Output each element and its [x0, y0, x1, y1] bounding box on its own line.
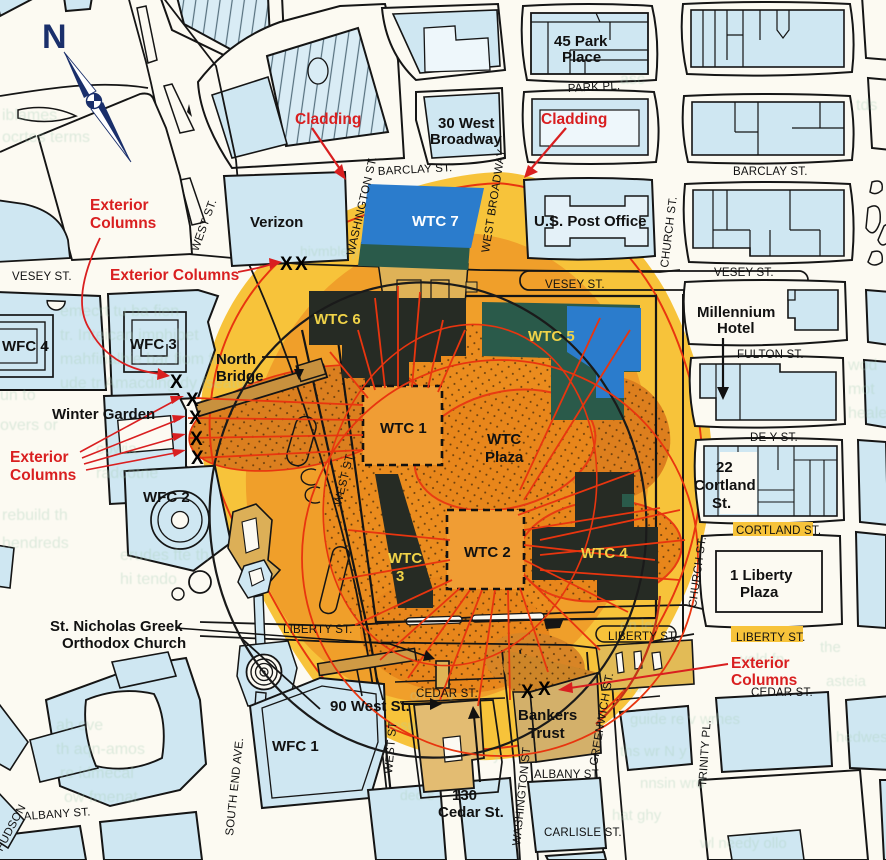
svg-text:iblames: iblames [2, 107, 57, 124]
svg-text:VESEY ST.: VESEY ST. [545, 279, 605, 291]
svg-text:Columns: Columns [731, 672, 797, 689]
svg-text:WTC 2: WTC 2 [464, 544, 511, 561]
svg-text:un to: un to [0, 387, 36, 404]
svg-text:Bankers: Bankers [518, 707, 577, 724]
svg-text:Orthodox Church: Orthodox Church [62, 635, 186, 652]
svg-text:Trust: Trust [528, 725, 565, 742]
svg-text:130: 130 [452, 787, 477, 804]
svg-text:guide re v wrhes: guide re v wrhes [630, 711, 740, 728]
svg-text:X: X [280, 254, 293, 275]
svg-text:emecrt tu ba fien: emecrt tu ba fien [60, 303, 179, 320]
svg-text:U.S. Post Office: U.S. Post Office [534, 213, 647, 230]
svg-text:WTC 5: WTC 5 [528, 328, 575, 345]
svg-text:X: X [521, 682, 534, 703]
svg-text:45 Park: 45 Park [554, 33, 608, 50]
svg-text:Exterior: Exterior [731, 655, 790, 672]
svg-text:th aqn-amos: th aqn-amos [56, 741, 145, 758]
svg-text:Cladding: Cladding [541, 111, 607, 128]
svg-text:asc: asc [620, 71, 645, 88]
svg-text:Millennium: Millennium [697, 304, 775, 321]
svg-text:Exterior: Exterior [90, 197, 149, 214]
svg-text:WTC 4: WTC 4 [581, 545, 628, 562]
svg-text:Exterior: Exterior [10, 449, 69, 466]
svg-text:hi tendo: hi tendo [120, 571, 177, 588]
svg-text:VESEY ST.: VESEY ST. [714, 267, 774, 279]
svg-text:X: X [190, 429, 203, 450]
svg-text:ths wr N y: ths wr N y [620, 743, 687, 760]
svg-text:Hotel: Hotel [717, 320, 755, 337]
svg-text:re idmecal: re idmecal [60, 765, 134, 782]
svg-text:3: 3 [396, 568, 404, 585]
svg-text:DE Y ST.: DE Y ST. [750, 432, 798, 444]
svg-text:Plaza: Plaza [740, 584, 779, 601]
svg-text:LIBERTY ST.: LIBERTY ST. [283, 624, 353, 636]
svg-text:the: the [820, 639, 841, 656]
svg-text:ocrtes terms: ocrtes terms [2, 129, 90, 146]
svg-text:X: X [189, 408, 202, 429]
svg-text:WTC 7: WTC 7 [412, 213, 459, 230]
svg-text:WTC 6: WTC 6 [314, 311, 361, 328]
svg-text:Place: Place [562, 49, 601, 66]
svg-text:Cladding: Cladding [295, 111, 361, 128]
svg-text:Winter Garden: Winter Garden [52, 406, 155, 423]
svg-text:X: X [170, 372, 183, 393]
svg-text:Columns: Columns [10, 467, 76, 484]
svg-text:X: X [538, 679, 551, 700]
svg-text:mot: mot [848, 381, 875, 398]
svg-text:90 West St.: 90 West St. [330, 698, 410, 715]
svg-text:hedwes: hedwes [836, 729, 886, 746]
svg-text:heale: heale [848, 405, 886, 422]
svg-text:Plaza: Plaza [485, 449, 524, 466]
svg-text:asteia: asteia [826, 673, 867, 690]
svg-text:N: N [42, 18, 67, 56]
svg-text:rebuild th: rebuild th [2, 507, 68, 524]
svg-text:BARCLAY ST.: BARCLAY ST. [733, 166, 808, 178]
svg-text:X: X [191, 448, 204, 469]
svg-text:WFC 2: WFC 2 [143, 489, 190, 506]
svg-text:Broadway: Broadway [430, 131, 502, 148]
svg-text:St.: St. [712, 495, 731, 512]
svg-text:hendreds: hendreds [2, 535, 69, 552]
svg-text:22: 22 [716, 459, 733, 476]
svg-text:X: X [295, 254, 308, 275]
svg-text:LIBERTY ST.: LIBERTY ST. [736, 632, 806, 644]
svg-text:North: North [216, 351, 256, 368]
svg-text:VESEY ST.: VESEY ST. [12, 271, 72, 283]
svg-text:WTC: WTC [487, 431, 521, 448]
svg-text:1 Liberty: 1 Liberty [730, 567, 793, 584]
svg-text:WFC 3: WFC 3 [130, 336, 177, 353]
svg-text:ah sve: ah sve [56, 717, 103, 734]
svg-text:Bridge: Bridge [216, 368, 264, 385]
svg-text:St. Nicholas Greek: St. Nicholas Greek [50, 618, 183, 635]
svg-text:Cedar St.: Cedar St. [438, 804, 504, 821]
svg-text:nnsin wrd: nnsin wrd [640, 775, 704, 792]
svg-text:FULTON ST.: FULTON ST. [737, 349, 804, 361]
svg-text:WFC 4: WFC 4 [2, 338, 49, 355]
svg-text:CARLISLE ST.: CARLISLE ST. [544, 827, 622, 839]
svg-text:30 West: 30 West [438, 115, 494, 132]
svg-text:overs or: overs or [0, 417, 58, 434]
svg-text:Verizon: Verizon [250, 214, 303, 231]
svg-text:wod: wod [847, 357, 877, 374]
svg-text:ow fmenat: ow fmenat [64, 789, 138, 806]
svg-text:WTC 1: WTC 1 [380, 420, 427, 437]
svg-text:Columns: Columns [90, 215, 156, 232]
svg-text:hat ghy: hat ghy [612, 807, 662, 824]
svg-text:ALBANY ST.: ALBANY ST. [534, 769, 601, 781]
svg-text:CEDAR ST.: CEDAR ST. [416, 688, 478, 700]
svg-text:Cortland: Cortland [694, 477, 756, 494]
svg-text:WFC 1: WFC 1 [272, 738, 319, 755]
svg-text:tds: tds [856, 97, 877, 114]
svg-text:LIBERTY ST.: LIBERTY ST. [608, 631, 678, 643]
svg-text:erudes fte th: erudes fte th [120, 547, 209, 564]
svg-text:Exterior Columns: Exterior Columns [110, 267, 239, 284]
svg-text:radcotne: radcotne [96, 465, 158, 482]
svg-text:CORTLAND ST.: CORTLAND ST. [736, 525, 821, 537]
svg-text:WTC: WTC [388, 550, 422, 567]
svg-text:wl needy ollo: wl needy ollo [699, 835, 787, 852]
